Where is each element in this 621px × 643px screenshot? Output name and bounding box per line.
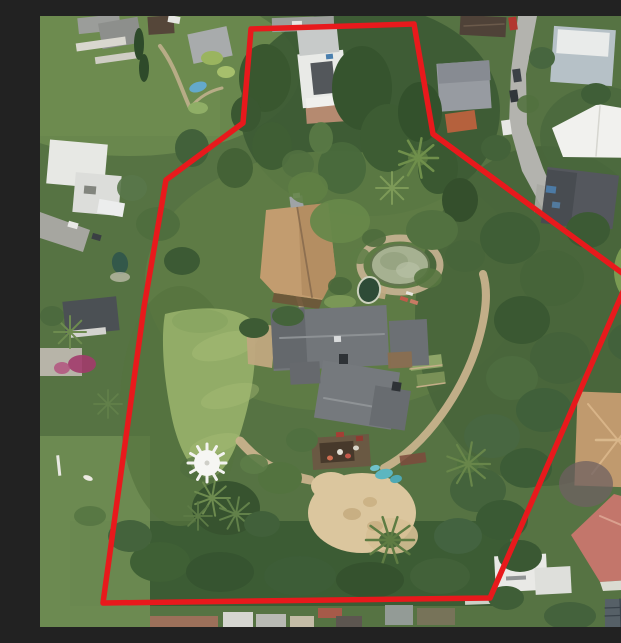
cabana-chair-1	[337, 449, 343, 455]
cabana-chair-2	[345, 454, 351, 459]
palm-fronds	[184, 502, 212, 530]
white-house-left-shadow	[84, 185, 97, 194]
tree-blob	[480, 212, 540, 264]
shrub	[350, 248, 370, 264]
house-topright-gray-shade	[437, 60, 490, 84]
tree-blob	[494, 296, 550, 344]
scene-shapes	[40, 16, 621, 627]
solar-roof-bottomright	[605, 599, 621, 627]
tree-blob	[217, 148, 253, 188]
tree-blob	[481, 135, 511, 161]
tree-blob	[530, 332, 590, 384]
hedge	[286, 428, 318, 452]
bottom-strip-white-roof	[223, 612, 253, 627]
sand-dimple-2	[363, 497, 377, 507]
bottom-strip-gray-2	[385, 605, 413, 625]
bright-bush-3	[188, 102, 208, 114]
tree-blob	[517, 95, 539, 113]
aerial-photograph	[40, 16, 621, 627]
hedge-blob	[336, 562, 404, 598]
white-modern-window-band	[310, 61, 335, 95]
palm-fronds	[94, 390, 122, 418]
tarp-blue-2	[552, 202, 561, 209]
sand-dimple-1	[343, 508, 361, 520]
hedge-blob	[264, 556, 336, 596]
tree-blob	[529, 47, 555, 69]
neighbor-pool-left-deck	[110, 272, 130, 282]
house-bottom-white-box	[534, 566, 571, 595]
hedge	[240, 454, 268, 474]
main-house-chimney-2	[391, 381, 401, 391]
cypress-column-2	[139, 54, 149, 82]
canopy-blob	[445, 240, 485, 272]
umbrella-pole-cap	[205, 461, 210, 466]
house-topright-bluish-roof	[556, 29, 610, 57]
tree-blob	[40, 306, 64, 326]
east-courtyard-deck	[388, 351, 413, 368]
car-road-dark-2	[509, 90, 519, 103]
hedge-blob	[410, 558, 470, 594]
canopy-blob	[406, 210, 458, 250]
bougainvillea-1	[68, 355, 96, 373]
bottom-strip-gray-roof	[256, 614, 286, 627]
lawn-top-tongue	[172, 309, 228, 333]
bright-bush-1	[201, 51, 223, 65]
tree-leafless-purple	[559, 461, 613, 507]
bottom-strip-deck	[150, 616, 218, 627]
bottom-strip-beige	[290, 616, 314, 627]
bottom-strip-dark	[336, 616, 362, 627]
cabana-chair-3	[327, 456, 333, 461]
tree-blob	[309, 122, 333, 154]
main-house-wing-d	[369, 385, 411, 430]
hedge	[272, 306, 304, 326]
aerial-photo-canvas	[40, 16, 621, 627]
cabana-chair-4	[353, 446, 359, 451]
shrub	[362, 229, 386, 247]
shrub	[328, 277, 352, 295]
tree-blob	[117, 175, 147, 201]
bougainvillea-2	[54, 362, 70, 374]
canopy-blob	[310, 199, 370, 243]
tree-blob	[164, 247, 200, 275]
tree-blob	[566, 212, 610, 248]
hedge-blob	[186, 552, 254, 592]
tree-blob	[244, 511, 280, 537]
tree-blob	[434, 518, 482, 554]
white-modern-roof-item	[326, 54, 333, 60]
bright-bush-2	[217, 66, 235, 78]
shrub	[414, 268, 442, 288]
hedge	[239, 318, 269, 338]
main-house-skylight	[334, 336, 341, 342]
canopy-blob	[288, 172, 328, 204]
tree-blob	[74, 506, 106, 526]
cabana-red-roof-1	[336, 432, 344, 438]
tarp-blue-1	[546, 185, 557, 193]
main-house-sw-block	[289, 361, 320, 385]
cabana-red-roof-2	[356, 436, 363, 441]
sand-upper-lobe	[311, 472, 351, 500]
tree-blob	[581, 83, 611, 105]
main-house-chimney-1	[339, 354, 348, 364]
palm-fronds	[376, 172, 408, 204]
